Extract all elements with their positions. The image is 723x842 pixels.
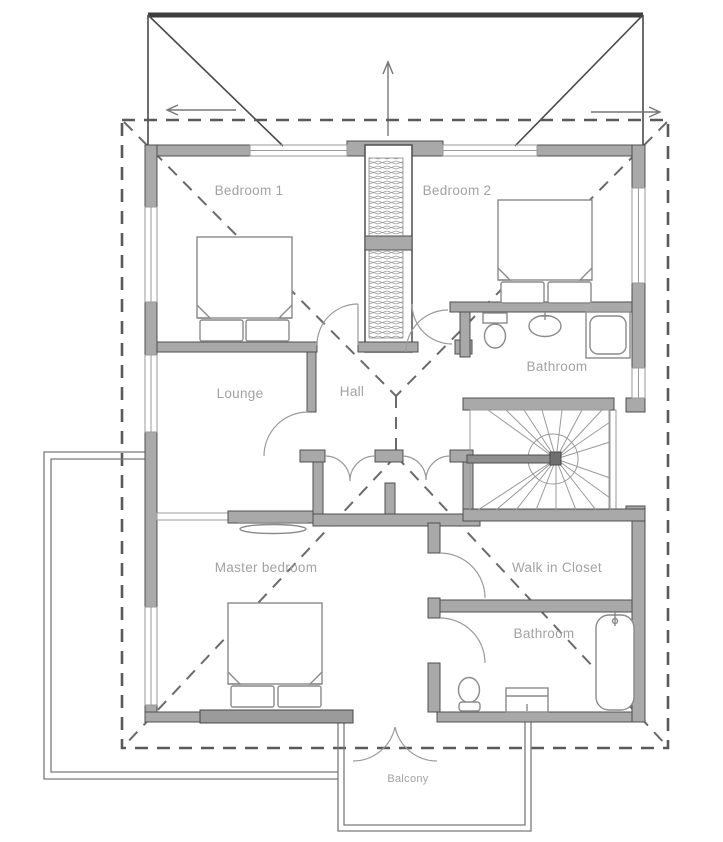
master-north-wall bbox=[228, 511, 313, 523]
roof-outline bbox=[148, 15, 643, 146]
toilet-icon bbox=[483, 313, 507, 348]
wall-segment bbox=[437, 712, 645, 722]
wall-segment bbox=[145, 432, 157, 607]
window bbox=[632, 188, 645, 283]
arrow-right-icon bbox=[591, 107, 660, 117]
room-label-bathroom-lower: Bathroom bbox=[514, 626, 575, 641]
room-label-bathroom-upper: Bathroom bbox=[527, 359, 588, 374]
lounge-half-wall bbox=[157, 513, 228, 520]
room-label-hall: Hall bbox=[340, 384, 364, 399]
door-arc-bathroom-lower bbox=[440, 618, 485, 663]
window bbox=[145, 607, 157, 705]
sofa-shelf-icon bbox=[238, 523, 308, 534]
arrow-up-icon bbox=[383, 62, 393, 136]
closet-north-wall bbox=[463, 509, 645, 521]
wall-segment bbox=[626, 398, 645, 412]
closet-bathroom-wall bbox=[440, 600, 632, 612]
french-doors-balcony bbox=[353, 727, 437, 761]
hall-south-stub bbox=[300, 450, 325, 462]
wardrobe-hatched bbox=[358, 145, 418, 352]
master-east-wall bbox=[428, 663, 440, 712]
lounge-east-wall bbox=[307, 352, 316, 412]
master-window-band bbox=[200, 710, 353, 723]
wall-segment bbox=[145, 145, 250, 156]
shower-icon bbox=[586, 312, 630, 358]
room-label-lounge: Lounge bbox=[217, 386, 264, 401]
hall-south-pillar bbox=[375, 450, 403, 462]
wall-segment bbox=[145, 712, 200, 722]
room-label-walk-in-closet: Walk in Closet bbox=[512, 560, 602, 575]
room-label-balcony: Balcony bbox=[387, 773, 428, 785]
stairs-north-wall bbox=[463, 398, 614, 410]
double-door-hall-right bbox=[403, 456, 450, 480]
master-east-wall bbox=[428, 598, 440, 618]
door-arc-walk-in-closet bbox=[440, 553, 485, 598]
vestibule-wall bbox=[313, 462, 323, 517]
balcony-railing bbox=[338, 722, 531, 831]
vanity-sink-icon bbox=[506, 688, 548, 712]
floor-plan-drawing: Bedroom 1 Bedroom 2 Bathroom Lounge Hall… bbox=[0, 0, 723, 842]
hall-east-wall bbox=[460, 312, 470, 357]
wall-segment bbox=[632, 145, 645, 188]
wall-segment bbox=[632, 283, 645, 368]
stair-handrail bbox=[467, 452, 561, 465]
room-label-bedroom-1: Bedroom 1 bbox=[215, 183, 284, 198]
bed-icon-bedroom2 bbox=[498, 200, 592, 303]
room-label-master-bedroom: Master bedroom bbox=[215, 560, 318, 575]
bedroom1-south-wall bbox=[157, 342, 317, 352]
window bbox=[632, 368, 645, 398]
wall-segment bbox=[537, 145, 645, 156]
window bbox=[250, 145, 347, 156]
arrow-left-icon bbox=[167, 105, 236, 115]
room-label-bedroom-2: Bedroom 2 bbox=[423, 183, 492, 198]
master-east-wall bbox=[428, 523, 440, 553]
stairs-west-wall bbox=[463, 462, 473, 513]
window bbox=[145, 207, 157, 302]
winder-staircase bbox=[467, 410, 610, 510]
toilet-icon bbox=[459, 678, 481, 712]
floor-plan-page: Bedroom 1 Bedroom 2 Bathroom Lounge Hall… bbox=[0, 0, 723, 842]
wall-segment bbox=[145, 302, 157, 355]
vestibule-south-wall bbox=[313, 514, 480, 526]
bed-icon-bedroom1 bbox=[197, 237, 292, 341]
double-door-hall-left bbox=[325, 456, 375, 481]
door-arc-lounge bbox=[264, 412, 308, 456]
wall-segment bbox=[145, 145, 157, 207]
bathtub-icon bbox=[596, 612, 634, 710]
window bbox=[145, 355, 157, 432]
door-arc-bedroom1 bbox=[317, 304, 358, 345]
vestibule-wall bbox=[385, 483, 395, 517]
window bbox=[443, 145, 537, 156]
sink-icon bbox=[529, 312, 561, 337]
bed-icon-master bbox=[228, 603, 322, 707]
